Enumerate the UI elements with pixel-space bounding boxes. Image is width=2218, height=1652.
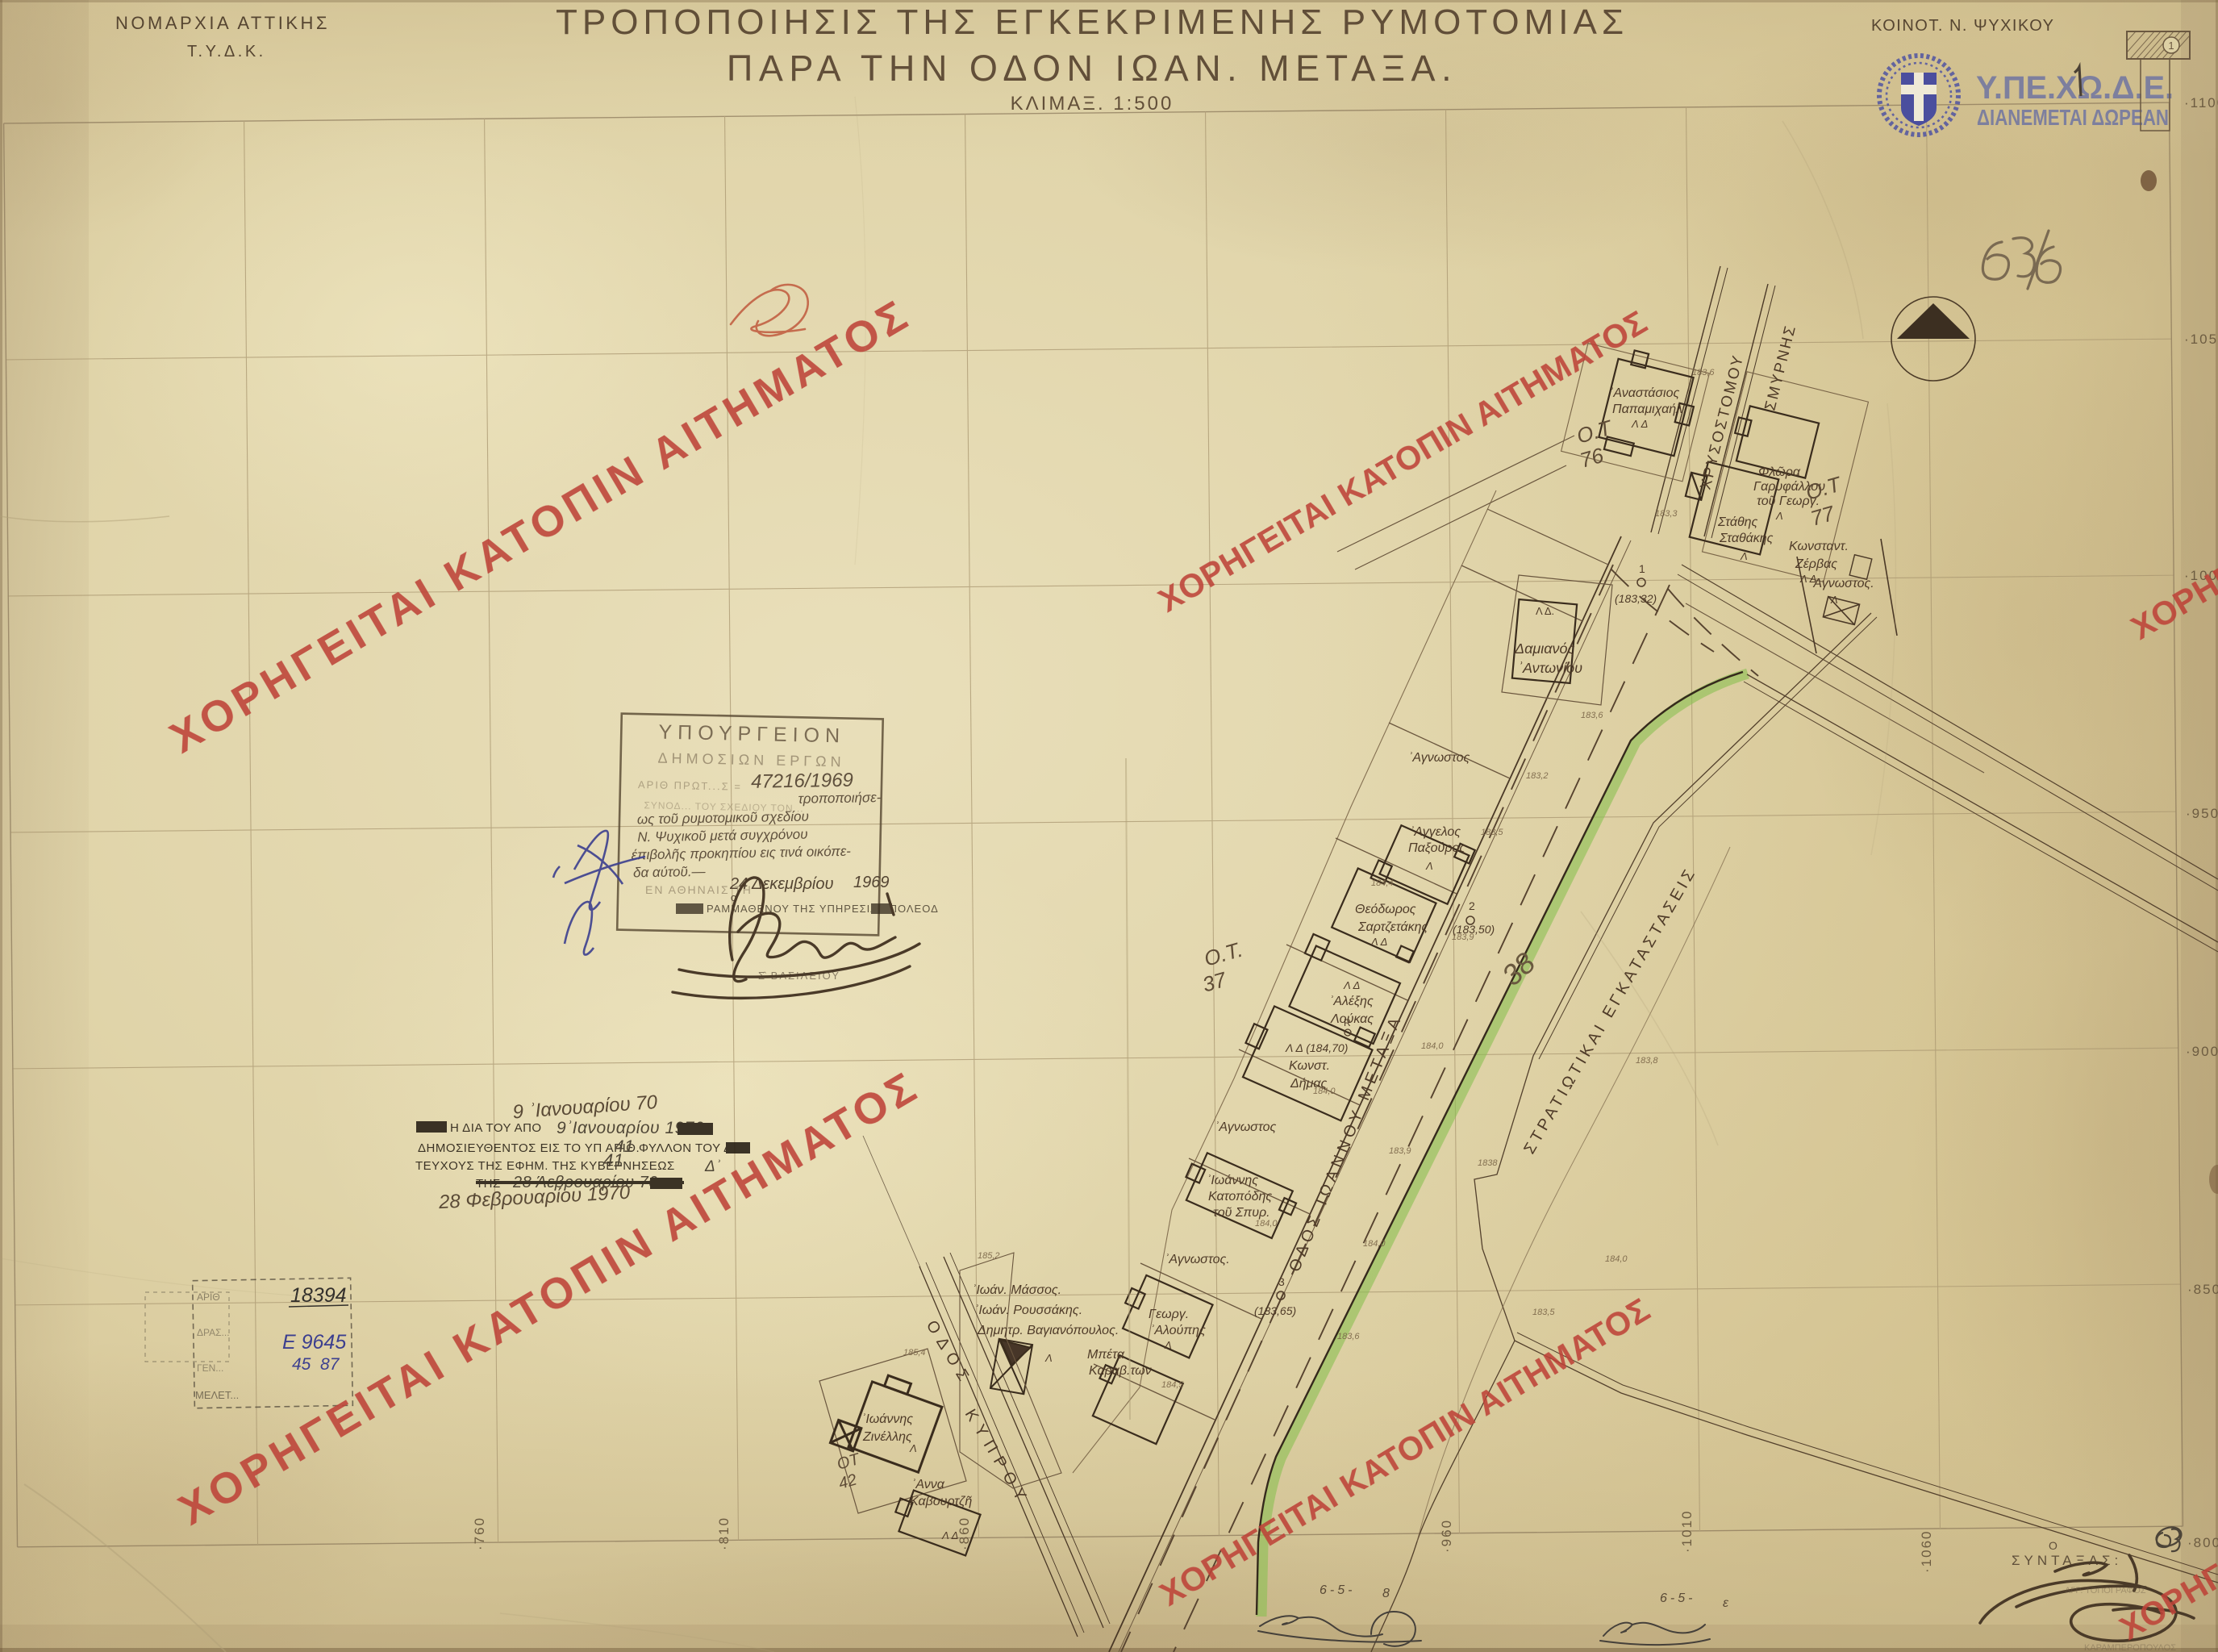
svg-text:Ζέρβας: Ζέρβας [1795,557,1837,571]
svg-text:Λ: Λ [1830,594,1838,606]
svg-text:ΚΛΙΜΑΞ. 1:500: ΚΛΙΜΑΞ. 1:500 [1011,93,1174,115]
svg-text:1969: 1969 [853,874,890,891]
svg-text:ʾΑννα: ʾΑννα [911,1478,945,1491]
svg-text:·1050: ·1050 [2184,332,2218,347]
svg-text:ʾΙωάννης: ʾΙωάννης [1207,1174,1258,1187]
svg-text:ʾΑγνωστος.: ʾΑγνωστος. [1809,577,1874,590]
svg-text:Λ Δ: Λ Δ [1370,936,1387,948]
svg-text:ʾΑγνωστος: ʾΑγνωστος [1408,751,1470,765]
svg-text:185,2: 185,2 [978,1251,1000,1261]
svg-text:ΡΑΜΜΑΘΕΝΟΥ ΤΗΣ ΥΠΗΡΕΣΙΑΣ ΠΟΛΕΟ: ΡΑΜΜΑΘΕΝΟΥ ΤΗΣ ΥΠΗΡΕΣΙΑΣ ΠΟΛΕΟΔ [707,903,939,915]
svg-text:183,5: 183,5 [1481,828,1503,837]
svg-text:Λ: Λ [1740,550,1748,562]
svg-text:Ν. Ψυχικοῦ μετά συγχρόνου: Ν. Ψυχικοῦ μετά συγχρόνου [637,827,808,845]
svg-text:Γεωργ.: Γεωργ. [1149,1308,1189,1321]
svg-text:184,0: 184,0 [1421,1041,1444,1051]
svg-text:ʾΙωάννης: ʾΙωάννης [861,1412,913,1426]
svg-text:183,2: 183,2 [1526,771,1549,781]
svg-text:184,0: 184,0 [1313,1087,1336,1096]
svg-text:3: 3 [1278,1275,1285,1288]
svg-text:1838: 1838 [1478,1158,1498,1168]
svg-text:τροποποιήσε-: τροποποιήσε- [798,790,882,807]
svg-text:183,9: 183,9 [1452,932,1474,942]
svg-text:183,6: 183,6 [1692,368,1715,378]
svg-text:Ο: Ο [2049,1539,2059,1552]
svg-text:6-5-: 6-5- [1660,1592,1695,1605]
svg-text:Λ Δ (184,70): Λ Δ (184,70) [1285,1041,1348,1054]
svg-text:Λ Δ: Λ Δ [1631,418,1648,430]
svg-text:·900: ·900 [2186,1044,2218,1059]
svg-text:183,6: 183,6 [1581,711,1603,720]
svg-text:183,8: 183,8 [1636,1056,1658,1066]
svg-text:47216/1969: 47216/1969 [751,770,853,793]
svg-text:1: 1 [2168,40,2174,52]
svg-text:Φλῶρα: Φλῶρα [1758,465,1801,479]
svg-text:ʾΑντωνίου: ʾΑντωνίου [1518,660,1582,676]
svg-text:ʾΑλούπης: ʾΑλούπης [1150,1324,1206,1337]
svg-text:ʾΑγγελος: ʾΑγγελος [1410,825,1461,839]
svg-text:·1100: ·1100 [2184,95,2218,111]
svg-text:ʾΙωάν. Μάσσος.: ʾΙωάν. Μάσσος. [972,1283,1061,1297]
svg-text:Λ: Λ [1044,1352,1053,1364]
svg-text:8: 8 [1382,1587,1390,1600]
svg-text:ΚΟΙΝΟΤ. Ν. ΨΥΧΙΚΟΥ: ΚΟΙΝΟΤ. Ν. ΨΥΧΙΚΟΥ [1871,17,2054,35]
svg-text:ΑΡΙΘ: ΑΡΙΘ [197,1291,220,1303]
svg-text:Σ̂ ΒΑΣΙΛΕΙΟΥ: Σ̂ ΒΑΣΙΛΕΙΟΥ [758,970,840,982]
svg-text:6-5-: 6-5- [1320,1583,1355,1597]
svg-text:Λούκας: Λούκας [1330,1012,1374,1026]
svg-text:Παξούρος: Παξούρος [1408,841,1465,855]
svg-text:Παπαμιχαήλ: Παπαμιχαήλ [1612,403,1682,416]
svg-text:ΓΕΝ...: ΓΕΝ... [197,1362,223,1374]
svg-text:·950: ·950 [2186,806,2218,821]
svg-text:ʾΑλέξης: ʾΑλέξης [1329,995,1374,1008]
svg-text:41: 41 [603,1150,623,1170]
svg-text:Καβουρτζῆ: Καβουρτζῆ [910,1495,972,1508]
svg-text:Δημητρ. Βαγιανόπουλος.: Δημητρ. Βαγιανόπουλος. [977,1324,1119,1337]
svg-text:ΤΕΥΧΟΥΣ ΤΗΣ ΕΦΗΜ. ΤΗΣ ΚΥΒΕΡΝΗΣ: ΤΕΥΧΟΥΣ ΤΗΣ ΕΦΗΜ. ΤΗΣ ΚΥΒΕΡΝΗΣΕΩΣ [415,1159,675,1173]
svg-text:ΑΡΙΘ ΠΡΩΤ...Σ =: ΑΡΙΘ ΠΡΩΤ...Σ = [638,778,742,793]
svg-text:Στάθης: Στάθης [1717,515,1758,529]
svg-text:·760: ·760 [472,1516,487,1550]
svg-text:1: 1 [1639,562,1645,575]
svg-text:Κατοπόδης: Κατοπόδης [1208,1190,1272,1204]
svg-text:ε: ε [1723,1596,1729,1610]
svg-text:Ζινέλλης: Ζινέλλης [862,1430,912,1444]
svg-text:·810: ·810 [716,1516,732,1550]
svg-text:184,0: 184,0 [1605,1254,1628,1264]
svg-text:184,5: 184,5 [1161,1380,1184,1390]
svg-text:Μπέτα: Μπέτα [1087,1348,1125,1362]
svg-text:ΠΑΡΑ ΤΗΝ ΟΔΟΝ ΙΩΑΝ. ΜΕΤΑΞΑ.: ΠΑΡΑ ΤΗΝ ΟΔΟΝ ΙΩΑΝ. ΜΕΤΑΞΑ. [727,48,1457,89]
svg-text:Τ.Υ.Δ.Κ.: Τ.Υ.Δ.Κ. [187,43,266,60]
svg-text:183,6: 183,6 [1337,1332,1360,1341]
svg-text:Θεόδωρος: Θεόδωρος [1355,903,1416,916]
svg-text:(183,32): (183,32) [1615,592,1657,605]
svg-text:Λ Δ.: Λ Δ. [1536,605,1554,617]
svg-text:Η ΔΙΑ ΤΟΥ ΑΠΟ: Η ΔΙΑ ΤΟΥ ΑΠΟ [450,1121,542,1135]
svg-text:184,4: 184,4 [1371,878,1394,888]
svg-text:Ε 9645: Ε 9645 [282,1331,346,1354]
svg-text:Λ Δ: Λ Δ [1343,979,1360,991]
svg-text:Υ.ΠΕ.ΧΩ.Δ.Ε.: Υ.ΠΕ.ΧΩ.Δ.Ε. [1976,70,2174,106]
svg-text:Δαμιανός: Δαμιανός [1514,640,1574,657]
svg-text:Λ Δ: Λ Δ [941,1529,958,1541]
svg-text:Λ: Λ [1775,510,1783,522]
svg-text:·1010: ·1010 [1679,1510,1695,1553]
svg-text:(183,65): (183,65) [1254,1304,1296,1317]
svg-text:·960: ·960 [1439,1519,1454,1553]
svg-text:184,0: 184,0 [1363,1239,1386,1249]
svg-text:Κωνστ.: Κωνστ. [1289,1059,1330,1073]
svg-text:Λ: Λ [909,1442,917,1454]
svg-text:·1060: ·1060 [1919,1530,1934,1573]
svg-text:ΔΡΑΣ...: ΔΡΑΣ... [197,1327,230,1338]
svg-text:τοῦ Σπυρ.: τοῦ Σπυρ. [1213,1206,1270,1220]
svg-text:ΦΥΛΛΟΝ ΤΟΥ Δʾ: ΦΥΛΛΟΝ ΤΟΥ Δʾ [639,1141,736,1155]
svg-text:45 87: 45 87 [292,1355,340,1374]
svg-text:183,9: 183,9 [1389,1146,1411,1156]
svg-text:ΝΟΜΑΡΧΙΑ ΑΤΤΙΚΗΣ: ΝΟΜΑΡΧΙΑ ΑΤΤΙΚΗΣ [115,13,330,33]
svg-text:Λ: Λ [1164,1339,1172,1351]
svg-text:185,4: 185,4 [903,1348,926,1358]
svg-text:Καραβ.των: Καραβ.των [1089,1364,1152,1378]
svg-text:Σαρτζετάκης: Σαρτζετάκης [1357,920,1428,934]
svg-text:ʾΑγνωστος.: ʾΑγνωστος. [1165,1253,1230,1266]
svg-text:ʾΙωάν. Ρουσσάκης.: ʾΙωάν. Ρουσσάκης. [974,1304,1082,1317]
svg-text:Λ: Λ [1425,860,1433,872]
svg-text:2: 2 [1469,899,1475,912]
svg-text:ως τοῦ ρυμοτομικοῦ σχεδίου: ως τοῦ ρυμοτομικοῦ σχεδίου [637,809,809,828]
svg-text:184,0: 184,0 [1255,1219,1278,1229]
svg-text:183,3: 183,3 [1655,509,1678,519]
svg-text:Κωνσταντ.: Κωνσταντ. [1789,540,1849,553]
svg-text:183,5: 183,5 [1532,1308,1555,1317]
svg-text:ΜΕΛΕΤ...: ΜΕΛΕΤ... [195,1389,239,1401]
svg-text:·850: ·850 [2187,1282,2218,1297]
svg-text:ΥΠΟΥΡΓΕΙΟΝ: ΥΠΟΥΡΓΕΙΟΝ [658,721,845,748]
svg-text:·800: ·800 [2187,1535,2218,1550]
svg-text:ΤΡΟΠΟΠΟΙΗΣΙΣ ΤΗΣ ΕΓΚΕΚΡΙΜΕΝΗΣ: ΤΡΟΠΟΠΟΙΗΣΙΣ ΤΗΣ ΕΓΚΕΚΡΙΜΕΝΗΣ ΡΥΜΟΤΟΜΙΑΣ [556,2,1628,42]
svg-text:δα αύτοῦ.—: δα αύτοῦ.— [633,864,707,881]
svg-text:ΑΓΡ. ΤΟΠΟΓΡΑΦΟΣ: ΑΓΡ. ΤΟΠΟΓΡΑΦΟΣ [2065,1586,2146,1596]
svg-text:ʾΑναστάσιος: ʾΑναστάσιος [1609,386,1679,400]
svg-text:Σταθάκης: Σταθάκης [1719,532,1774,545]
svg-text:ʾΑγνωστος: ʾΑγνωστος [1215,1120,1276,1134]
